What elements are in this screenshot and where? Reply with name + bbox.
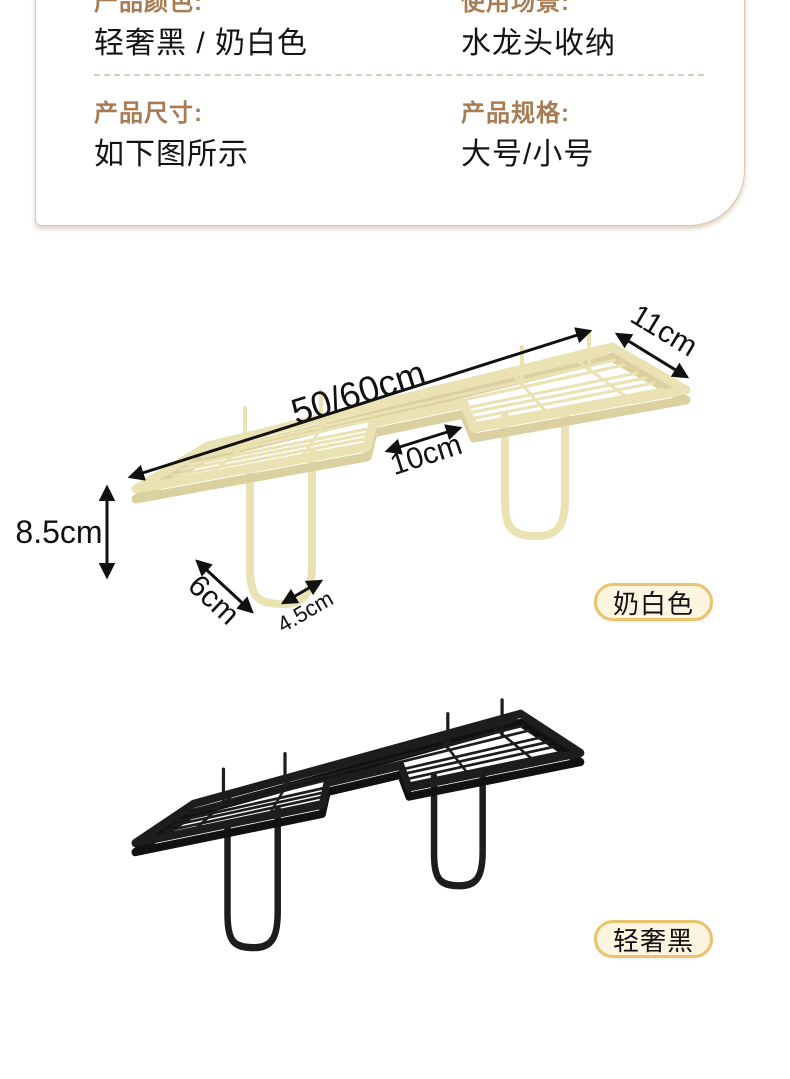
spec-label-color: 产品颜色: bbox=[94, 0, 461, 16]
product-detail-page: 产品颜色: 轻奢黑 / 奶白色 使用场景: 水龙头收纳 产品尺寸: 如下图所示 … bbox=[0, 0, 790, 1079]
spec-value-color: 轻奢黑 / 奶白色 bbox=[94, 27, 461, 61]
spec-row-2: 产品尺寸: 如下图所示 产品规格: 大号/小号 bbox=[94, 76, 704, 172]
spec-cell-size: 产品尺寸: 如下图所示 bbox=[94, 100, 461, 172]
depth-dimension-label: 11cm bbox=[625, 298, 703, 363]
spec-label-size: 产品尺寸: bbox=[94, 100, 461, 127]
spec-value-size: 如下图所示 bbox=[94, 138, 461, 172]
color-badge-black: 轻奢黑 bbox=[594, 920, 713, 958]
height-dimension-label: 8.5cm bbox=[15, 514, 102, 550]
spec-label-spec: 产品规格: bbox=[461, 100, 704, 127]
spec-cell-color: 产品颜色: 轻奢黑 / 奶白色 bbox=[94, 0, 461, 61]
product-spec-card: 产品颜色: 轻奢黑 / 奶白色 使用场景: 水龙头收纳 产品尺寸: 如下图所示 … bbox=[35, 0, 745, 226]
hook-depth-dimension-label: 6cm bbox=[181, 569, 245, 630]
spec-value-spec: 大号/小号 bbox=[461, 138, 704, 172]
spec-label-scene: 使用场景: bbox=[461, 0, 704, 16]
cream-rack-diagram: 50/60cm 11cm 10cm 8.5cm 6cm 4.5cm bbox=[0, 280, 790, 630]
color-badge-cream: 奶白色 bbox=[594, 583, 713, 621]
black-rack-diagram bbox=[0, 640, 790, 960]
spec-value-scene: 水龙头收纳 bbox=[461, 27, 704, 61]
spec-cell-scene: 使用场景: 水龙头收纳 bbox=[461, 0, 704, 61]
notch-dimension-label: 10cm bbox=[386, 428, 466, 482]
black-rack-illustration bbox=[135, 700, 580, 948]
spec-row-1: 产品颜色: 轻奢黑 / 奶白色 使用场景: 水龙头收纳 bbox=[94, 0, 704, 76]
spec-cell-spec: 产品规格: 大号/小号 bbox=[461, 100, 704, 172]
